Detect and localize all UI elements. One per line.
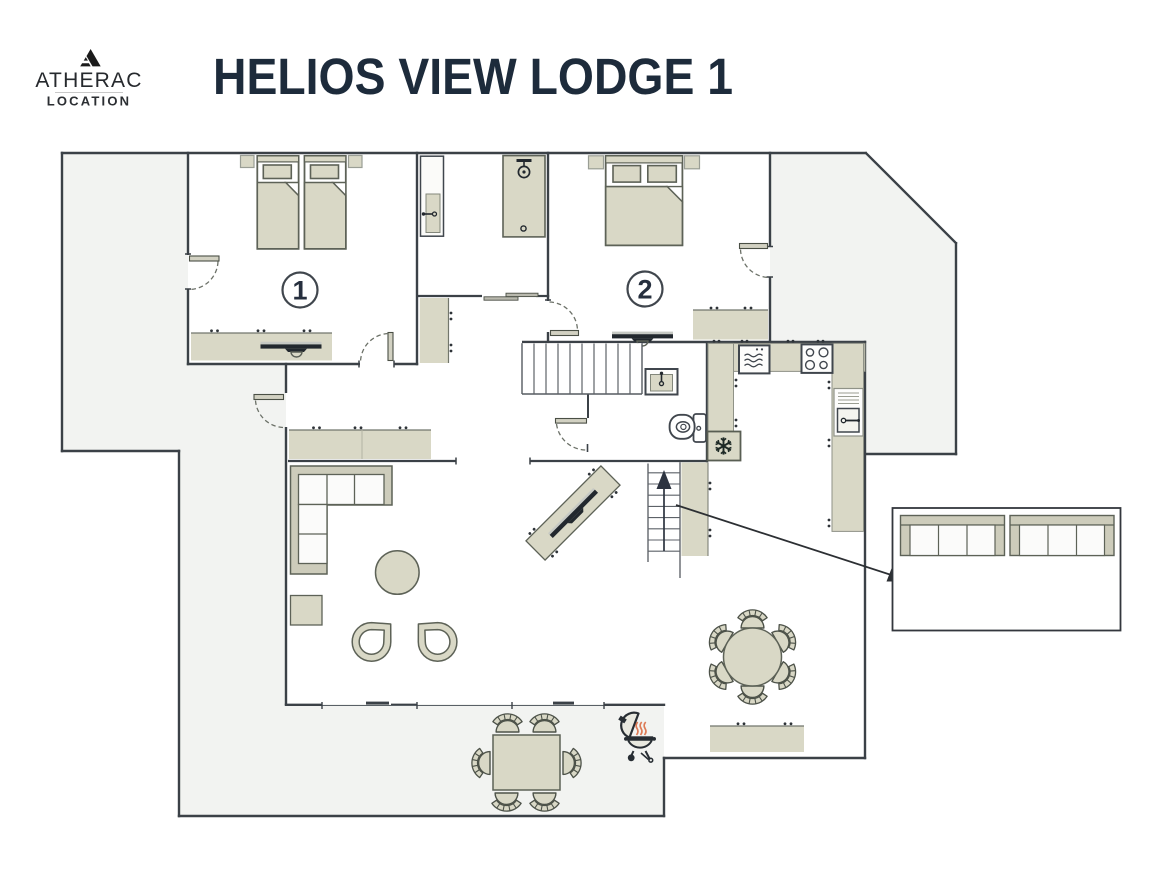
svg-text:LOCATION: LOCATION	[47, 94, 132, 109]
svg-text:1: 1	[292, 276, 307, 306]
svg-text:2: 2	[637, 275, 652, 305]
svg-text:HELIOS VIEW LODGE 1: HELIOS VIEW LODGE 1	[213, 48, 733, 105]
svg-text:ATHERAC: ATHERAC	[35, 69, 142, 92]
